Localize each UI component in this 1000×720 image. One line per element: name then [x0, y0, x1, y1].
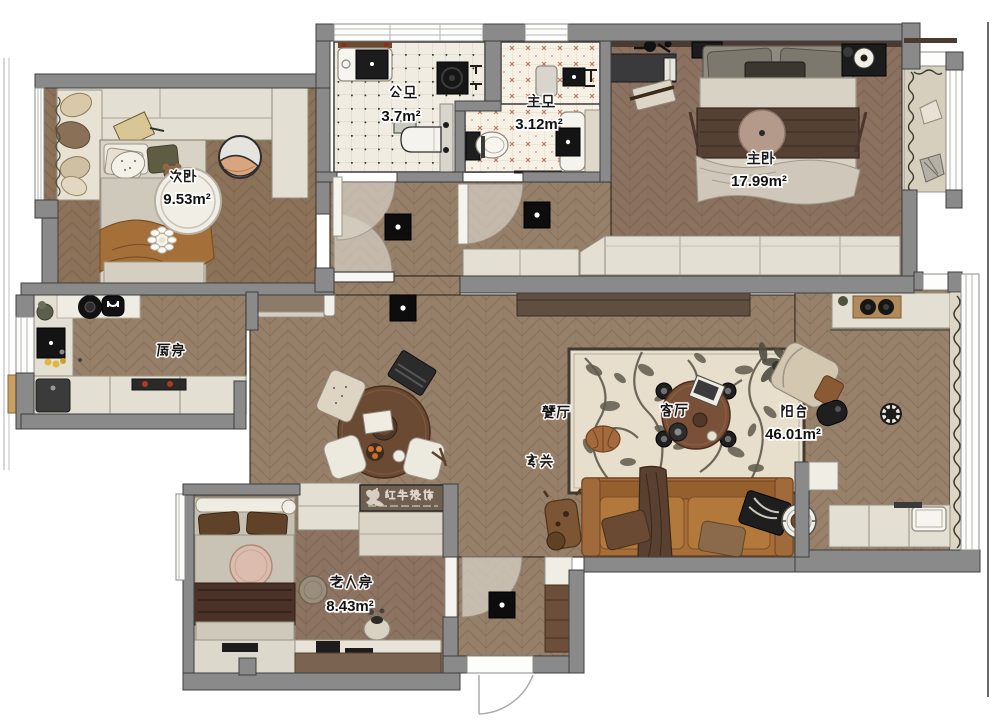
svg-text:17.99m²: 17.99m²: [731, 173, 787, 190]
svg-text:8.43m²: 8.43m²: [326, 598, 374, 615]
svg-text:3.12m²: 3.12m²: [515, 116, 563, 133]
svg-text:46.01m²: 46.01m²: [765, 426, 821, 443]
svg-text:9.53m²: 9.53m²: [163, 191, 211, 208]
svg-text:3.7m²: 3.7m²: [381, 108, 420, 125]
